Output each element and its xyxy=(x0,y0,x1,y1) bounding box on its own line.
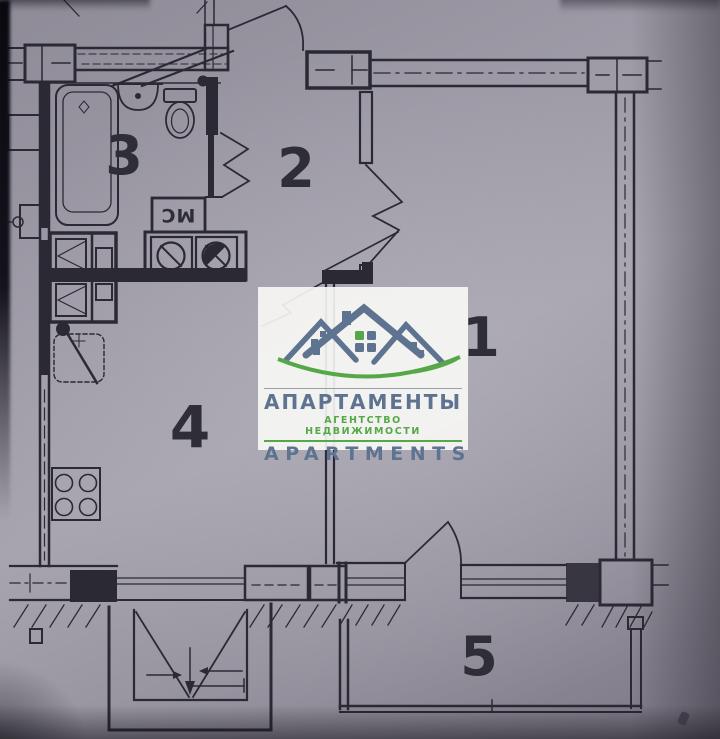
room-label-4: 4 xyxy=(170,398,210,456)
room-label-1: 1 xyxy=(462,311,500,365)
entry-door-swing xyxy=(228,6,303,50)
entry-door-jamb xyxy=(64,0,228,70)
room-label-2: 2 xyxy=(277,142,315,196)
houses-logo-icon xyxy=(264,287,474,387)
floorplan-photo: АПАРТАМЕНТЫ АГЕНТСТВО НЕДВИЖИМОСТИ APART… xyxy=(0,0,720,739)
room-label-5: 5 xyxy=(460,630,498,684)
balcony-door-swing xyxy=(405,522,461,566)
room1-bottom-wall xyxy=(337,563,600,625)
washing-machine-label: МС xyxy=(161,204,196,226)
agency-watermark: АПАРТАМЕНТЫ АГЕНТСТВО НЕДВИЖИМОСТИ APART… xyxy=(258,287,468,450)
ladder-hatch-icon xyxy=(136,612,245,697)
hall-top-column xyxy=(307,52,370,88)
stove-icon xyxy=(52,468,100,520)
toilet-icon xyxy=(164,89,196,138)
watermark-subtitle-ru: АГЕНТСТВО НЕДВИЖИМОСТИ xyxy=(264,415,462,442)
kitchen-bottom-wall xyxy=(10,566,346,643)
watermark-title-ru: АПАРТАМЕНТЫ xyxy=(264,388,462,413)
room-label-3: 3 xyxy=(105,129,143,183)
bathroom-right-wall xyxy=(206,77,249,197)
cabinet-icon xyxy=(50,233,116,322)
bathroom-sink-icon xyxy=(114,84,162,110)
room1-right-wall xyxy=(616,92,634,560)
top-right-column xyxy=(588,58,661,92)
kitchen-sink-icon xyxy=(54,322,104,383)
room1-top-wall xyxy=(370,60,588,86)
watermark-title-en: APARTMENTS xyxy=(264,445,462,464)
top-left-column xyxy=(0,45,75,82)
room1-entry-zigzag-door xyxy=(360,92,402,271)
left-wall xyxy=(8,82,49,566)
